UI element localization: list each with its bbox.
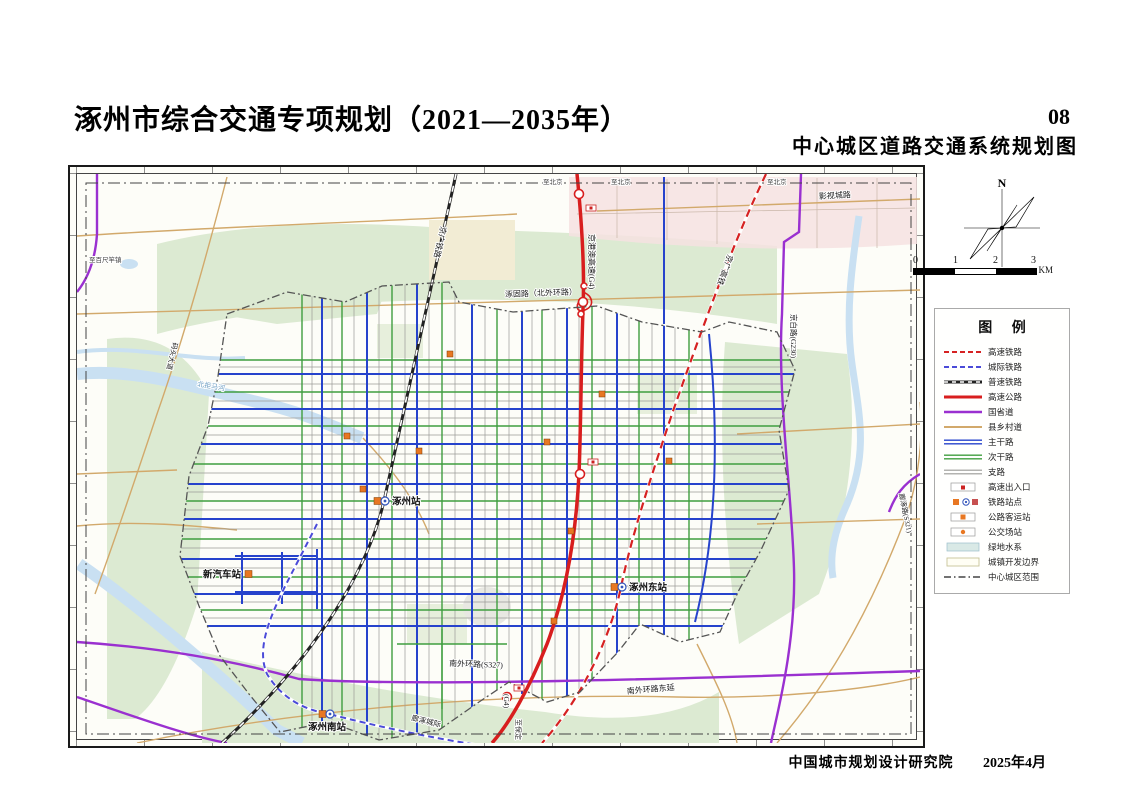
map-canvas: 涿州站涿州东站涿州南站新汽车站 京港澳高速(G4)京广铁路京广高铁京白路(G23… bbox=[77, 174, 920, 743]
legend-item-label: 城际铁路 bbox=[988, 361, 1022, 373]
bus-depot-marker bbox=[447, 351, 453, 357]
page-number: 08 bbox=[1048, 104, 1070, 130]
footer-date: 2025年4月 bbox=[983, 756, 1046, 771]
bus-depot-marker bbox=[416, 448, 422, 454]
rail-swatch bbox=[943, 376, 983, 388]
edge-label: 至百尺竿镇 bbox=[89, 255, 122, 264]
road-label: 南外环路东延 bbox=[626, 682, 675, 696]
branch-swatch bbox=[943, 466, 983, 478]
road-label: 京港澳高速(G4) bbox=[587, 234, 597, 289]
legend-item: 高速公路 bbox=[943, 390, 1065, 404]
greenwater-swatch bbox=[943, 541, 983, 553]
legend-item: 高速出入口 bbox=[943, 480, 1065, 494]
legend-item-label: 铁路站点 bbox=[988, 496, 1022, 508]
edge-label: 至北京 bbox=[543, 177, 563, 186]
legend-item: 中心城区范围 bbox=[943, 570, 1065, 584]
secondary-swatch bbox=[943, 451, 983, 463]
provincial-swatch bbox=[943, 406, 983, 418]
edge-label: 至北京 bbox=[611, 177, 631, 186]
legend-item: 公路客运站 bbox=[943, 510, 1065, 524]
bus-depot-marker bbox=[568, 528, 574, 534]
svg-text:涿州站: 涿州站 bbox=[392, 496, 421, 508]
scale-bar-strip bbox=[913, 268, 1037, 275]
bus-depot-marker bbox=[360, 486, 366, 492]
legend-item: 城际铁路 bbox=[943, 360, 1065, 374]
scale-bar: 0 1 2 3 KM bbox=[913, 255, 1053, 289]
legend-item-label: 县乡村道 bbox=[988, 421, 1022, 433]
legend-item-label: 绿地水系 bbox=[988, 541, 1022, 553]
arterial-swatch bbox=[943, 436, 983, 448]
legend-item: 县乡村道 bbox=[943, 420, 1065, 434]
legend-item-label: 公路客运站 bbox=[988, 511, 1031, 523]
legend-title: 图 例 bbox=[947, 317, 1065, 337]
station-rail: 涿州站 bbox=[374, 496, 421, 508]
legend: 图 例 高速铁路城际铁路普速铁路高速公路国省道县乡村道主干路次干路支路高速出入口… bbox=[934, 308, 1070, 594]
expressway-swatch bbox=[943, 391, 983, 403]
legend-item-label: 次干路 bbox=[988, 451, 1014, 463]
footer: 中国城市规划设计研究院 2025年4月 bbox=[789, 752, 1047, 772]
centerboundary-swatch bbox=[943, 571, 983, 583]
legend-item-label: 支路 bbox=[988, 466, 1005, 478]
bus-depot-marker bbox=[666, 458, 672, 464]
hsr-swatch bbox=[943, 346, 983, 358]
devboundary-swatch bbox=[943, 556, 983, 568]
svg-text:涿州南站: 涿州南站 bbox=[308, 721, 347, 733]
legend-item-label: 主干路 bbox=[988, 436, 1014, 448]
legend-item-label: 国省道 bbox=[988, 406, 1014, 418]
intercity-swatch bbox=[943, 361, 983, 373]
county-swatch bbox=[943, 421, 983, 433]
busterminal-swatch bbox=[943, 511, 983, 523]
road-label: (G4) bbox=[502, 694, 511, 709]
bus-depot-marker bbox=[544, 439, 550, 445]
map-frame: 涿州站涿州东站涿州南站新汽车站 京港澳高速(G4)京广铁路京广高铁京白路(G23… bbox=[68, 165, 925, 748]
road-label: 至保定 bbox=[514, 719, 523, 740]
north-label: N bbox=[998, 176, 1007, 190]
page-title: 涿州市综合交通专项规划（2021—2035年） bbox=[74, 98, 629, 138]
legend-item: 国省道 bbox=[943, 405, 1065, 419]
svg-text:新汽车站: 新汽车站 bbox=[203, 569, 242, 581]
bus-depot-marker bbox=[551, 618, 557, 624]
scale-unit: KM bbox=[1038, 265, 1053, 275]
legend-item-label: 公交场站 bbox=[988, 526, 1022, 538]
road-label: 影视城路 bbox=[819, 189, 851, 201]
legend-item: 次干路 bbox=[943, 450, 1065, 464]
edge-label: 至北京 bbox=[767, 177, 787, 186]
legend-item-label: 中心城区范围 bbox=[988, 571, 1039, 583]
plan-sheet: 涿州市综合交通专项规划（2021—2035年） 08 中心城区道路交通系统规划图 bbox=[0, 0, 1130, 800]
map-subtitle: 中心城区道路交通系统规划图 bbox=[792, 130, 1078, 159]
svg-text:涿州东站: 涿州东站 bbox=[629, 582, 668, 594]
scale-tick: 2 bbox=[993, 255, 998, 266]
scale-tick: 3 bbox=[1031, 255, 1036, 266]
legend-item-label: 城镇开发边界 bbox=[988, 556, 1039, 568]
legend-item: 高速铁路 bbox=[943, 345, 1065, 359]
railstation-swatch bbox=[943, 496, 983, 508]
road-label: 京白路(G230) bbox=[789, 314, 799, 359]
legend-item: 绿地水系 bbox=[943, 540, 1065, 554]
scale-tick: 0 bbox=[913, 255, 918, 266]
station-bus: 新汽车站 bbox=[203, 569, 252, 581]
road-label: 南外环路(S327) bbox=[449, 658, 503, 670]
legend-item-label: 高速铁路 bbox=[988, 346, 1022, 358]
legend-item: 公交场站 bbox=[943, 525, 1065, 539]
bus-depot-marker bbox=[599, 391, 605, 397]
legend-item: 铁路站点 bbox=[943, 495, 1065, 509]
legend-item-label: 高速公路 bbox=[988, 391, 1022, 403]
legend-item-label: 普速铁路 bbox=[988, 376, 1022, 388]
legend-item: 支路 bbox=[943, 465, 1065, 479]
ramp-swatch bbox=[943, 481, 983, 493]
scale-tick: 1 bbox=[953, 255, 958, 266]
legend-item: 主干路 bbox=[943, 435, 1065, 449]
legend-item: 城镇开发边界 bbox=[943, 555, 1065, 569]
footer-organization: 中国城市规划设计研究院 bbox=[789, 756, 954, 771]
bus-depot-marker bbox=[344, 433, 350, 439]
busdepot-swatch bbox=[943, 526, 983, 538]
legend-item-label: 高速出入口 bbox=[988, 481, 1031, 493]
north-development-zone bbox=[569, 177, 917, 249]
legend-item: 普速铁路 bbox=[943, 375, 1065, 389]
